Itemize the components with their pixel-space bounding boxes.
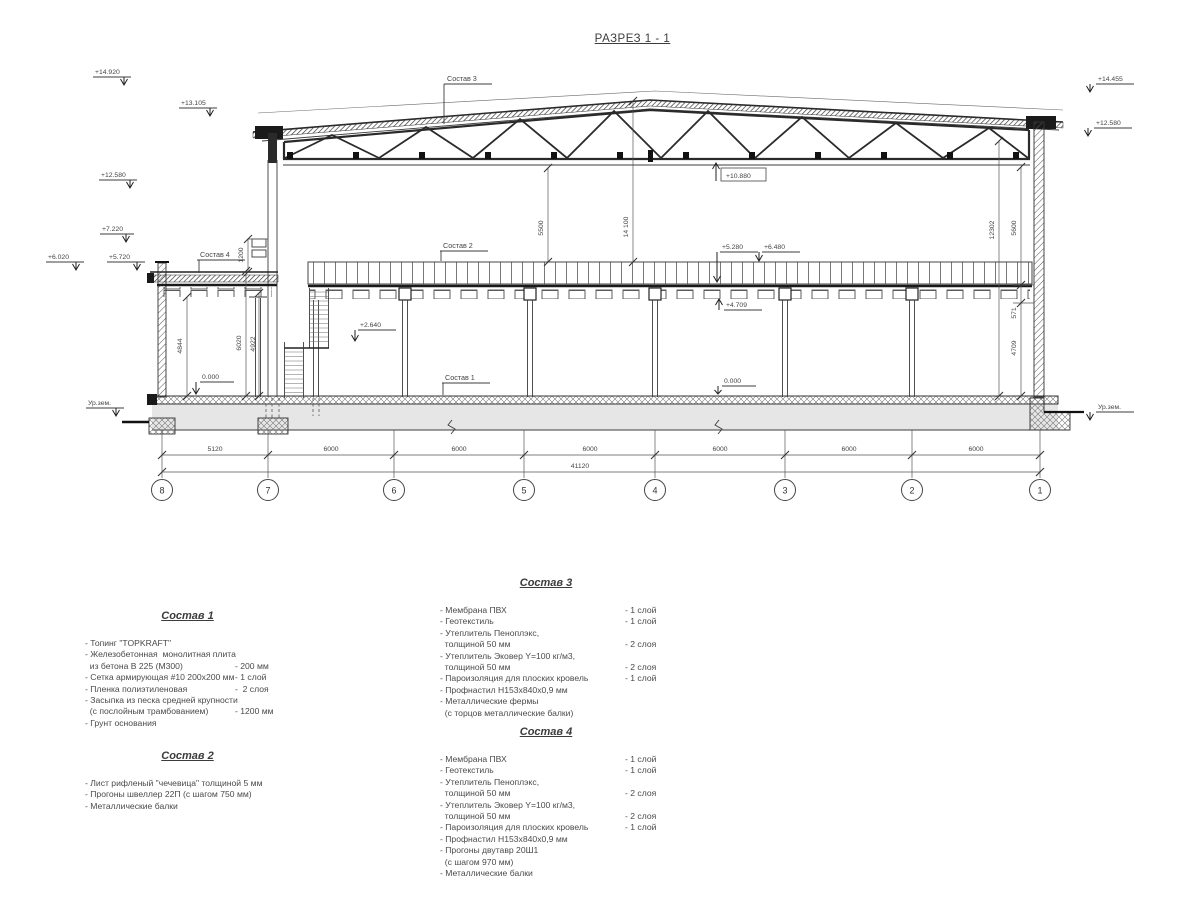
list-item: - Утеплитель Пеноплэкс, — [440, 777, 685, 788]
list-item: - Утеплитель Эковер Y=100 кг/м3, — [440, 651, 685, 662]
svg-text:+5.280: +5.280 — [722, 244, 743, 251]
list-item: - Топинг "TOPKRAFT" — [85, 638, 290, 649]
dim-6020: 6020 — [236, 335, 243, 350]
dim-4922: 4922 — [250, 336, 257, 351]
axis-7: 7 — [265, 486, 270, 496]
label-comp1: Состав 1 — [442, 373, 490, 395]
svg-text:+5.720: +5.720 — [109, 254, 130, 261]
composition-1-title: Состав 1 — [85, 610, 290, 622]
dim-4709: 4709 — [1011, 340, 1018, 355]
svg-text:Ур.зем.: Ур.зем. — [88, 400, 111, 407]
elevation-10880: +10.880 — [713, 163, 767, 181]
svg-text:+14.920: +14.920 — [95, 69, 120, 76]
list-item: - Профнастил Н153х840х0,9 мм — [440, 685, 685, 696]
composition-4-title: Состав 4 — [440, 726, 652, 738]
composition-block-3: Состав 3 - Мембрана ПВХ- 1 слой - Геотек… — [440, 577, 685, 719]
dim-4844: 4844 — [177, 338, 184, 353]
axis-8: 8 — [159, 486, 164, 496]
list-item: - Пароизоляция для плоских кровель- 1 сл… — [440, 822, 685, 833]
elevation-13105: +13.105 — [179, 100, 217, 116]
staircase — [284, 288, 329, 398]
svg-text:+10.880: +10.880 — [726, 173, 751, 180]
section-drawing: 5500 14 100 1200 4844 6020 4922 12302 56… — [0, 0, 1200, 545]
elevation-14920: +14.920 — [93, 69, 131, 85]
axis-2: 2 — [909, 486, 914, 496]
elevation-zero-left: 0.000 — [193, 374, 235, 394]
span-4-3: 6000 — [712, 446, 727, 453]
axis-1: 1 — [1037, 486, 1042, 496]
drawing-sheet: { "title": "РАЗРЕЗ 1 - 1", "colors": {"l… — [0, 0, 1200, 900]
list-item: - Прогоны двутавр 20Ш1 — [440, 845, 685, 856]
svg-text:+7.220: +7.220 — [102, 226, 123, 233]
composition-2-title: Состав 2 — [85, 750, 290, 762]
list-item: - Пароизоляция для плоских кровель- 1 сл… — [440, 673, 685, 684]
bottom-dimensions: 5120 6000 6000 6000 6000 6000 6000 41120 — [158, 430, 1044, 478]
walls — [155, 122, 1044, 397]
composition-block-2: Состав 2 - Лист рифленый "чечевица" толщ… — [85, 750, 290, 812]
list-item: (с шагом 970 мм) — [440, 857, 685, 868]
composition-block-1: Состав 1 - Топинг "TOPKRAFT" - Железобет… — [85, 610, 290, 729]
elevation-zero-right: 0.000 — [715, 378, 757, 394]
list-item: - Утеплитель Пеноплэкс, — [440, 628, 685, 639]
span-3-2: 6000 — [841, 446, 856, 453]
mezzanine-columns — [314, 288, 919, 397]
list-item: - Геотекстиль- 1 слой — [440, 765, 685, 776]
list-item: - Прогоны швеллер 22П (с шагом 750 мм) — [85, 789, 290, 800]
dim-5600: 5600 — [1011, 220, 1018, 235]
elevation-6480: +6.480 — [756, 244, 801, 261]
list-item: толщиной 50 мм- 2 слоя — [440, 811, 685, 822]
list-item: - Металлические балки — [440, 868, 685, 879]
elevation-5720: +5.720 — [107, 254, 145, 270]
list-item: - Профнастил Н153х840х0,9 мм — [440, 834, 685, 845]
svg-text:+4.709: +4.709 — [726, 302, 747, 309]
list-item: - Пленка полиэтиленовая- 2 слоя — [85, 684, 290, 695]
list-item: - Металлические балки — [85, 801, 290, 812]
svg-text:+12.580: +12.580 — [1096, 120, 1121, 127]
list-item: - Сетка армирующая #10 200х200 мм- 1 сло… — [85, 672, 290, 683]
elevation-7220: +7.220 — [100, 226, 134, 242]
wall-axis8 — [158, 263, 166, 397]
svg-text:+14.455: +14.455 — [1098, 76, 1123, 83]
list-item: - Мембрана ПВХ- 1 слой — [440, 754, 685, 765]
svg-text:+6.020: +6.020 — [48, 254, 69, 261]
dim-12302: 12302 — [989, 220, 996, 239]
total-dimension: 41120 — [571, 463, 590, 470]
vertical-dimensions: 5500 14 100 1200 4844 6020 4922 12302 56… — [177, 97, 1034, 400]
svg-text:Состав 4: Состав 4 — [200, 250, 230, 259]
list-item: - Засыпка из песка средней крупности — [85, 695, 290, 706]
svg-text:+6.480: +6.480 — [764, 244, 785, 251]
list-item: - Металлические фермы — [440, 696, 685, 707]
elevation-4709: +4.709 — [716, 299, 763, 310]
dim-5500: 5500 — [538, 220, 545, 235]
svg-text:0.000: 0.000 — [202, 374, 219, 381]
label-comp2: Состав 2 — [440, 241, 488, 261]
elevation-2640: +2.640 — [352, 322, 397, 341]
composition-block-4: Состав 4 - Мембрана ПВХ- 1 слой - Геотек… — [440, 726, 685, 879]
span-6-5: 6000 — [451, 446, 466, 453]
list-item: - Грунт основания — [85, 718, 290, 729]
list-item: - Геотекстиль- 1 слой — [440, 616, 685, 627]
axis-3: 3 — [782, 486, 787, 496]
span-5-4: 6000 — [582, 446, 597, 453]
svg-text:Состав 3: Состав 3 — [447, 74, 477, 83]
span-8-7: 5120 — [207, 446, 222, 453]
dim-14100: 14 100 — [623, 216, 630, 237]
axis-4: 4 — [652, 486, 657, 496]
list-item: толщиной 50 мм- 2 слоя — [440, 639, 685, 650]
elevation-6020: +6.020 — [46, 254, 84, 270]
wall-axis1 — [1034, 122, 1044, 397]
list-item: - Мембрана ПВХ- 1 слой — [440, 605, 685, 616]
list-item: - Железобетонная монолитная плита — [85, 649, 290, 660]
mezzanine — [308, 262, 1032, 397]
svg-text:Ур.зем.: Ур.зем. — [1098, 404, 1121, 411]
svg-text:+2.640: +2.640 — [360, 322, 381, 329]
span-2-1: 6000 — [968, 446, 983, 453]
list-item: (с торцов металлические балки) — [440, 708, 685, 719]
axis-bubbles: 8 7 6 5 4 3 2 1 — [152, 480, 1051, 501]
list-item: толщиной 50 мм- 2 слоя — [440, 788, 685, 799]
svg-text:Состав 1: Состав 1 — [445, 373, 475, 382]
composition-3-title: Состав 3 — [440, 577, 652, 589]
list-item: - Лист рифленый "чечевица" толщиной 5 мм — [85, 778, 290, 789]
wall-axis7-top — [268, 133, 277, 163]
span-7-6: 6000 — [323, 446, 338, 453]
list-item: толщиной 50 мм- 2 слоя — [440, 662, 685, 673]
svg-text:Состав 2: Состав 2 — [443, 241, 473, 250]
elevation-14455: +14.455 — [1087, 76, 1135, 92]
elevation-12580-right: +12.580 — [1085, 120, 1133, 136]
list-item: из бетона В 225 (М300)- 200 мм — [85, 661, 290, 672]
dim-571: 571 — [1011, 307, 1018, 319]
list-item: (с послойным трамбованием)- 1200 мм — [85, 706, 290, 717]
ground-level-left: Ур.зем. — [86, 400, 124, 416]
list-item: - Утеплитель Эковер Y=100 кг/м3, — [440, 800, 685, 811]
svg-text:+13.105: +13.105 — [181, 100, 206, 107]
axis-5: 5 — [521, 486, 526, 496]
svg-text:+12.580: +12.580 — [101, 172, 126, 179]
elevation-12580-left: +12.580 — [99, 172, 137, 188]
ground-level-right: Ур.зем. — [1087, 404, 1135, 420]
svg-text:0.000: 0.000 — [724, 378, 741, 385]
axis-6: 6 — [391, 486, 396, 496]
